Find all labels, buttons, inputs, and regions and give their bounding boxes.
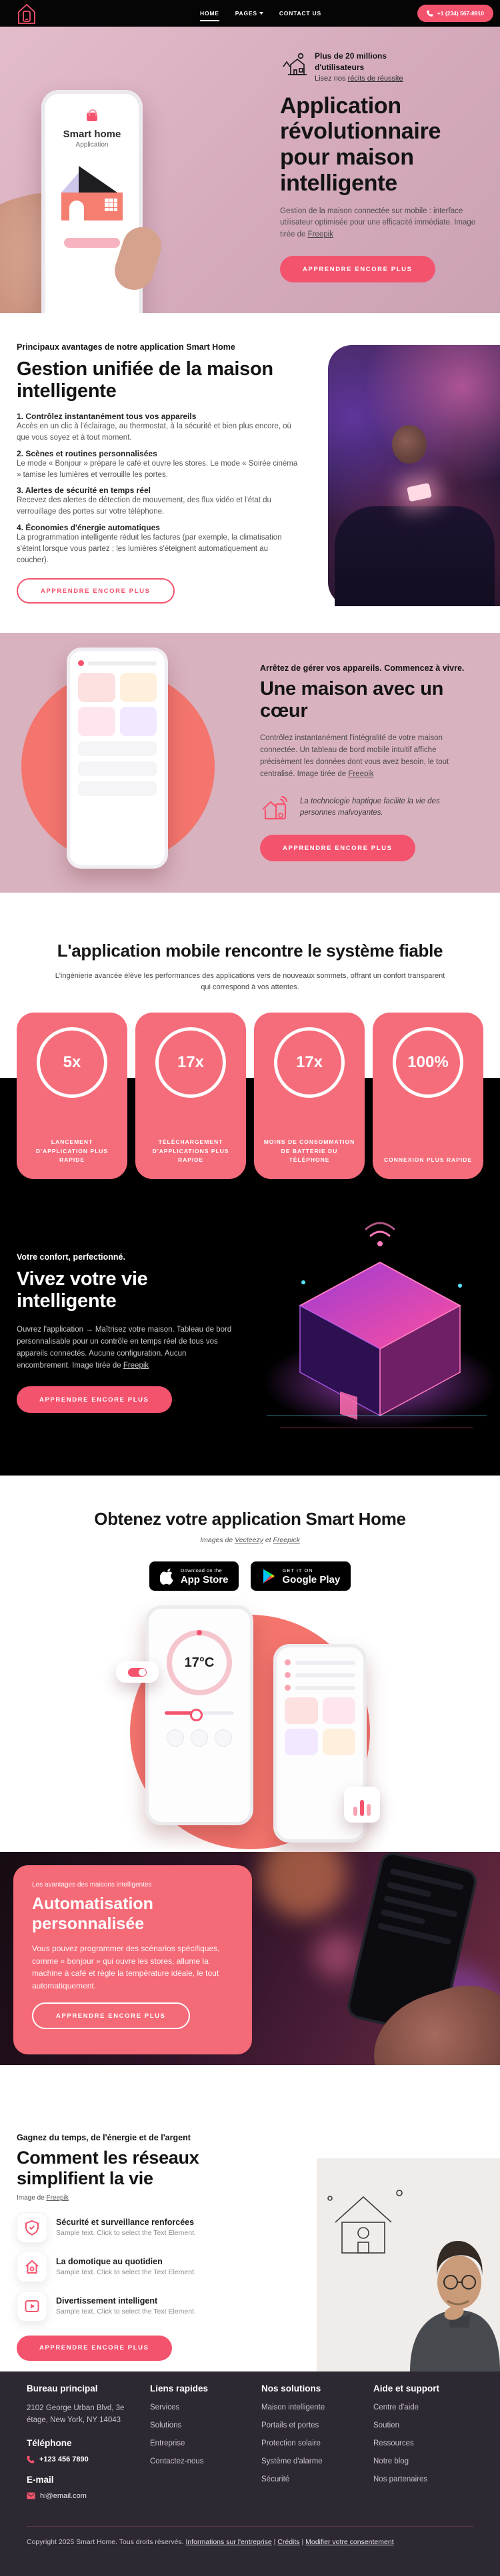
networks-list: Sécurité et surveillance renforcées Samp… [17, 2212, 303, 2322]
footer-phone[interactable]: +123 456 7890 [27, 2455, 133, 2463]
nav-pages[interactable]: PAGES [235, 10, 263, 17]
heart-section: Arrêtez de gérer vos appareils. Commence… [0, 633, 500, 893]
networks-content: Gagnez du temps, de l'énergie et de l'ar… [17, 2133, 303, 2361]
footer-link[interactable]: Entreprise [150, 2439, 237, 2447]
footer-column-title: Bureau principal [27, 2383, 133, 2393]
hero-photo: Smart home Application [0, 27, 280, 313]
phone-icon [427, 10, 433, 17]
success-stories-link[interactable]: récits de réussite [348, 75, 403, 83]
phone-title: Téléphone [27, 2438, 133, 2448]
google-play-badge[interactable]: GET IT ON Google Play [251, 1561, 351, 1591]
footer-link[interactable]: Portails et portes [261, 2421, 361, 2429]
feature-item-title: 2. Scènes et routines personnalisées [17, 449, 302, 458]
footer-link[interactable]: Système d'alarme [261, 2457, 361, 2465]
footer-solutions-column: Nos solutions Maison intelligente Portai… [261, 2383, 361, 2483]
footer-link[interactable]: Solutions [150, 2421, 237, 2429]
stats-section: L'application mobile rencontre le systèm… [0, 893, 500, 1186]
phone-app-name: Smart home [45, 129, 139, 140]
haptic-note: La technologie haptique facilite la vie … [260, 792, 484, 823]
freepik-link[interactable]: Freepik [308, 230, 333, 238]
stats-cards: 5x LANCEMENT D'APPLICATION PLUS RAPIDE 1… [17, 1013, 483, 1179]
hero-content: Plus de 20 millions d'utilisateurs Lisez… [280, 51, 488, 282]
phone-login-button [64, 238, 120, 248]
play-media-icon [17, 2291, 47, 2322]
app-preview-artwork: 17°C [127, 1605, 373, 1852]
consent-link[interactable]: Modifier votre consentement [305, 2538, 393, 2546]
badge-title: Plus de 20 millions d'utilisateurs [315, 51, 401, 73]
header: HOME PAGES CONTACT US +1 (234) 567-8910 [0, 0, 500, 27]
networks-title: Comment les réseaux simplifient la vie [17, 2148, 230, 2189]
store-badge-small-text: GET IT ON [282, 1567, 340, 1573]
freepik-link[interactable]: Freepik [123, 1362, 149, 1370]
feature-item-text: Le mode « Bonjour » prépare le café et o… [17, 458, 302, 482]
credits-link[interactable]: Crédits [277, 2538, 299, 2546]
networks-section: Gagnez du temps, de l'énergie et de l'ar… [0, 2065, 500, 2371]
house-illustration [57, 166, 127, 222]
list-item: La domotique au quotidien Sample text. C… [17, 2252, 297, 2282]
store-badge-big-text: Google Play [282, 1574, 340, 1585]
footer-link[interactable]: Services [150, 2403, 237, 2411]
footer-link[interactable]: Maison intelligente [261, 2403, 361, 2411]
features-eyebrow: Principaux avantages de notre applicatio… [17, 342, 302, 352]
logo-icon[interactable] [17, 3, 37, 25]
freepik-link[interactable]: Freepick [273, 1536, 300, 1544]
list-item-title: La domotique au quotidien [56, 2257, 196, 2266]
chevron-down-icon [259, 12, 263, 15]
features-title: Gestion unifiée de la maison intelligent… [17, 358, 297, 402]
stats-subtitle: L'ingénierie avancée élève les performan… [50, 971, 450, 993]
heart-cta-button[interactable]: APPRENDRE ENCORE PLUS [260, 835, 415, 861]
stat-label: LANCEMENT D'APPLICATION PLUS RAPIDE [17, 1138, 127, 1164]
stat-card: 100% CONNEXION PLUS RAPIDE [373, 1013, 483, 1179]
feature-item-text: Recevez des alertes de détection de mouv… [17, 495, 302, 518]
footer-link[interactable]: Contactez-nous [150, 2457, 237, 2465]
automation-title: Automatisation personnalisée [32, 1894, 233, 1934]
temperature-slider[interactable] [165, 1711, 234, 1715]
networks-eyebrow: Gagnez du temps, de l'énergie et de l'ar… [17, 2133, 303, 2142]
smartlife-eyebrow: Votre confort, perfectionné. [17, 1252, 241, 1262]
footer-link[interactable]: Soutien [373, 2421, 473, 2429]
list-item-text: Sample text. Click to select the Text El… [56, 2308, 196, 2316]
smartlife-cta-button[interactable]: APPRENDRE ENCORE PLUS [17, 1386, 172, 1413]
bokeh-light [260, 1852, 347, 1919]
feature-item-title: 4. Économies d'énergie automatiques [17, 523, 302, 532]
stat-label: CONNEXION PLUS RAPIDE [376, 1156, 480, 1164]
main-nav: HOME PAGES CONTACT US [200, 0, 321, 27]
equalizer-chip [344, 1787, 380, 1823]
footer: Bureau principal 2102 George Urban Blvd,… [0, 2371, 500, 2576]
getapp-title: Obtenez votre application Smart Home [0, 1476, 500, 1529]
envelope-icon [27, 2492, 35, 2499]
nav-home[interactable]: HOME [200, 10, 219, 17]
stat-label: TÉLÉCHARGEMENT D'APPLICATIONS PLUS RAPID… [135, 1138, 246, 1164]
automation-cta-button[interactable]: APPRENDRE ENCORE PLUS [32, 2002, 190, 2029]
list-item-text: Sample text. Click to select the Text El… [56, 2229, 196, 2237]
hero-description: Gestion de la maison connectée sur mobil… [280, 206, 480, 241]
feature-item-title: 3. Alertes de sécurité en temps réel [17, 486, 302, 495]
list-item-title: Divertissement intelligent [56, 2296, 196, 2306]
list-item-title: Sécurité et surveillance renforcées [56, 2218, 196, 2227]
feature-item-text: Accès en un clic à l'éclairage, au therm… [17, 421, 302, 444]
footer-link[interactable]: Centre d'aide [373, 2403, 473, 2411]
freepik-link[interactable]: Freepik [46, 2194, 68, 2202]
features-cta-button[interactable]: APPRENDRE ENCORE PLUS [17, 578, 175, 604]
smartlife-title: Vivez votre vie intelligente [17, 1268, 190, 1312]
smart-house-icon [280, 51, 308, 79]
automation-description: Vous pouvez programmer des scénarios spé… [32, 1942, 233, 1992]
footer-bottom-bar: Copyright 2025 Smart Home. Tous droits r… [27, 2538, 394, 2546]
office-address: 2102 George Urban Blvd, 3e étage, New Yo… [27, 2402, 133, 2427]
man-on-sofa-photo [328, 345, 500, 606]
automation-eyebrow: Les avantages des maisons intelligentes [32, 1881, 233, 1889]
image-credit: Images de Vecteezy et Freepick [0, 1536, 500, 1544]
smartlife-section: Votre confort, perfectionné. Vivez votre… [0, 1186, 500, 1476]
smart-home-icon [17, 2252, 47, 2282]
neon-house-illustration [240, 1216, 500, 1456]
toggle-chip [116, 1661, 159, 1683]
footer-support-column: Aide et support Centre d'aide Soutien Re… [373, 2383, 473, 2483]
list-item: Divertissement intelligent Sample text. … [17, 2291, 297, 2322]
footer-office-column: Bureau principal 2102 George Urban Blvd,… [27, 2383, 133, 2500]
stats-title: L'application mobile rencontre le systèm… [0, 893, 500, 961]
email-title: E-mail [27, 2475, 133, 2485]
stat-label: MOINS DE CONSOMMATION DE BATTERIE DU TÉL… [254, 1138, 365, 1164]
header-phone-button[interactable]: +1 (234) 567-8910 [417, 5, 493, 22]
footer-link[interactable]: Ressources [373, 2439, 473, 2447]
stat-ring: 17x [274, 1027, 345, 1098]
phone-app-subtitle: Application [45, 141, 139, 149]
house-wifi-icon [260, 792, 291, 823]
bokeh-light [313, 1932, 360, 1978]
feature-item-title: 1. Contrôlez instantanément tous vos app… [17, 412, 302, 421]
hero-section: Smart home Application [0, 27, 500, 313]
store-badge-small-text: Download on the [181, 1567, 229, 1573]
features-content: Principaux avantages de notre applicatio… [17, 342, 302, 604]
features-list: 1. Contrôlez instantanément tous vos app… [17, 412, 302, 566]
shield-icon [17, 2212, 47, 2243]
heart-title: Une maison avec un cœur [260, 678, 460, 722]
thinking-man-photo [317, 2158, 500, 2371]
automation-card: Les avantages des maisons intelligentes … [13, 1865, 252, 2054]
footer-link[interactable]: Notre blog [373, 2457, 473, 2465]
app-logo-icon [87, 113, 97, 121]
hero-title: Application révolutionnaire pour maison … [280, 93, 488, 197]
footer-divider [27, 2526, 473, 2527]
stat-card: 17x MOINS DE CONSOMMATION DE BATTERIE DU… [254, 1013, 365, 1179]
footer-column-title: Nos solutions [261, 2383, 361, 2393]
footer-link[interactable]: Sécurité [261, 2475, 361, 2483]
copyright-text: Copyright 2025 Smart Home. Tous droits r… [27, 2538, 186, 2546]
app-store-badge[interactable]: Download on the App Store [149, 1561, 239, 1591]
features-section: Principaux avantages de notre applicatio… [0, 313, 500, 633]
store-badge-big-text: App Store [181, 1574, 229, 1585]
heart-content: Arrêtez de gérer vos appareils. Commence… [260, 663, 484, 861]
stat-ring: 17x [155, 1027, 226, 1098]
thermostat-dial: 17°C [167, 1630, 232, 1695]
automation-section: Les avantages des maisons intelligentes … [0, 1852, 500, 2065]
footer-quicklinks-column: Liens rapides Services Solutions Entrepr… [150, 2383, 237, 2465]
image-credit: Image de Freepik [17, 2194, 303, 2202]
smartlife-description: Ouvrez l'application → Maîtrisez votre m… [17, 1324, 237, 1372]
getapp-section: Obtenez votre application Smart Home Ima… [0, 1476, 500, 1852]
heart-description: Contrôlez instantanément l'intégralité d… [260, 733, 480, 780]
stat-card: 17x TÉLÉCHARGEMENT D'APPLICATIONS PLUS R… [135, 1013, 246, 1179]
smart-home-landing-page: HOME PAGES CONTACT US +1 (234) 567-8910 … [0, 0, 500, 2576]
google-play-icon [261, 1568, 276, 1584]
freepik-link[interactable]: Freepik [348, 770, 373, 778]
footer-link[interactable]: Nos partenaires [373, 2475, 473, 2483]
stat-card: 5x LANCEMENT D'APPLICATION PLUS RAPIDE [17, 1013, 127, 1179]
nav-contact-us[interactable]: CONTACT US [279, 10, 321, 17]
stat-ring: 100% [393, 1027, 463, 1098]
toggle-switch[interactable] [128, 1668, 147, 1677]
badge-link-line: Lisez nos récits de réussite [315, 75, 403, 83]
apple-icon [160, 1567, 175, 1585]
networks-cta-button[interactable]: APPRENDRE ENCORE PLUS [17, 2336, 172, 2361]
app-phone-mockup [67, 647, 168, 869]
users-badge: Plus de 20 millions d'utilisateurs Lisez… [280, 51, 488, 83]
thermostat-phone-mockup: 17°C [145, 1605, 253, 1825]
footer-link[interactable]: Protection solaire [261, 2439, 361, 2447]
app-dot-icon [78, 660, 84, 666]
feature-item-text: La programmation intelligente réduit les… [17, 532, 302, 567]
list-item: Sécurité et surveillance renforcées Samp… [17, 2212, 297, 2243]
list-item-text: Sample text. Click to select the Text El… [56, 2268, 196, 2276]
phone-receiver-icon [27, 2455, 35, 2463]
store-badges: Download on the App Store GET IT ON Goog… [0, 1561, 500, 1591]
footer-email[interactable]: hi@email.com [27, 2492, 133, 2500]
heart-eyebrow: Arrêtez de gérer vos appareils. Commence… [260, 663, 484, 673]
thermostat-value: 17°C [185, 1655, 215, 1671]
footer-column-title: Liens rapides [150, 2383, 237, 2393]
vecteezy-link[interactable]: Vecteezy [235, 1536, 263, 1544]
stat-ring: 5x [37, 1027, 107, 1098]
footer-column-title: Aide et support [373, 2383, 473, 2393]
smartlife-content: Votre confort, perfectionné. Vivez votre… [17, 1252, 241, 1413]
haptic-note-text: La technologie haptique facilite la vie … [300, 796, 447, 819]
hero-cta-button[interactable]: APPRENDRE ENCORE PLUS [280, 256, 435, 282]
company-info-link[interactable]: Informations sur l'entreprise [186, 2538, 272, 2546]
